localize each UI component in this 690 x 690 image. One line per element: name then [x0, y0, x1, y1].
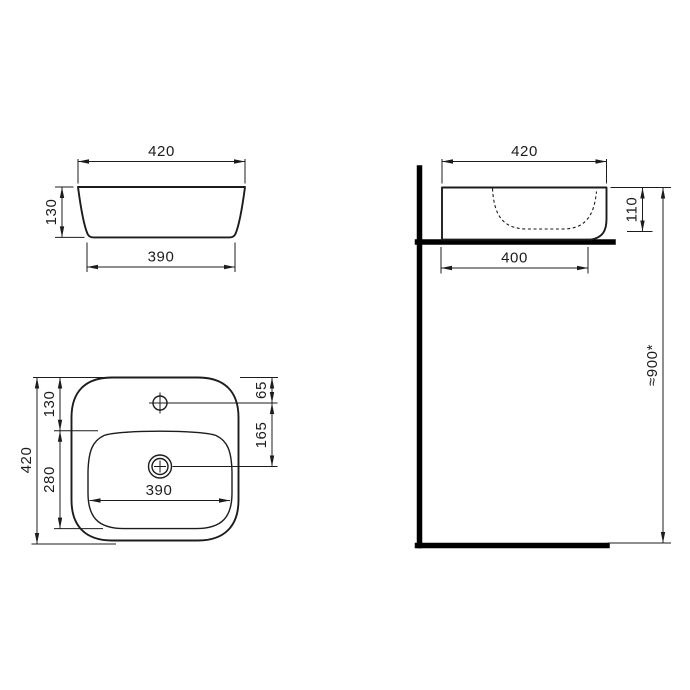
dim-label-plan-bowl-width: 390	[146, 482, 173, 499]
plan-view: 420 130 280 65 165 390	[18, 378, 278, 545]
drawing-canvas: 420 130 390 420 400 110 ≈900*	[0, 0, 690, 690]
dim-label-side-rim-height: 110	[624, 197, 641, 223]
dim-label-plan-bowl-depth: 280	[41, 466, 58, 493]
basin-front-outline	[78, 187, 245, 237]
dim-label-side-base-depth: 400	[501, 250, 528, 267]
dim-label-faucet-to-drain: 165	[253, 422, 270, 449]
dim-label-plan-overall-depth: 420	[18, 447, 35, 474]
basin-plan-outer-outline	[72, 378, 239, 541]
drain-center-lines	[154, 461, 278, 473]
dim-label-front-base-width: 390	[148, 249, 175, 266]
basin-side-outline	[442, 188, 607, 240]
dim-label-plan-rim-to-bowl: 130	[41, 391, 58, 418]
dim-label-side-overall-depth: 420	[511, 143, 538, 160]
inner-bowl-hidden-contour	[493, 189, 597, 230]
dim-label-faucet-hole-offset: 65	[253, 381, 270, 399]
basin-plan-inner-bowl-outline	[88, 431, 232, 528]
front-view: 420 130 390	[43, 143, 245, 272]
dim-label-front-height: 130	[43, 199, 60, 226]
dim-label-front-overall-width: 420	[148, 143, 175, 160]
dim-label-mounting-height: ≈900*	[644, 344, 661, 386]
technical-drawing: 420 130 390 420 400 110 ≈900*	[0, 0, 690, 690]
side-view: 420 400 110 ≈900*	[418, 143, 672, 546]
